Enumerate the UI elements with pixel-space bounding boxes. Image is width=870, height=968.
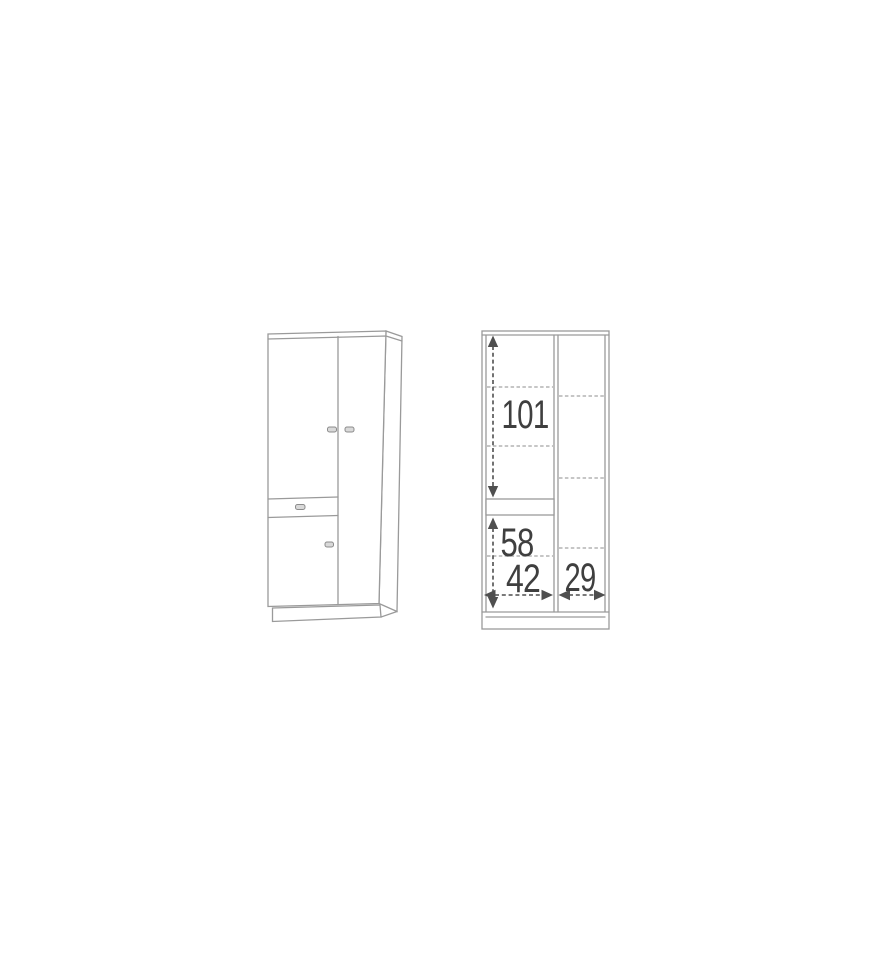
plinth <box>273 605 382 622</box>
wardrobe-diagram-svg: 101 58 42 29 <box>0 0 870 968</box>
drawer-handle-icon <box>296 505 306 510</box>
drawer-front <box>486 499 554 515</box>
dimension-label-upper-height: 101 <box>502 393 549 437</box>
plinth-side-edge <box>381 612 397 618</box>
dimension-label-left-width: 42 <box>506 557 540 601</box>
perspective-view <box>268 331 402 622</box>
lower-door-handle-icon <box>325 542 334 547</box>
cabinet-front-face <box>268 331 386 607</box>
left-door-handle-icon <box>328 427 337 432</box>
right-door-handle-icon <box>345 427 354 432</box>
front-dimension-view: 101 58 42 29 <box>482 331 609 629</box>
dimension-label-right-width: 29 <box>565 556 596 600</box>
diagram-page: 101 58 42 29 <box>0 0 870 968</box>
